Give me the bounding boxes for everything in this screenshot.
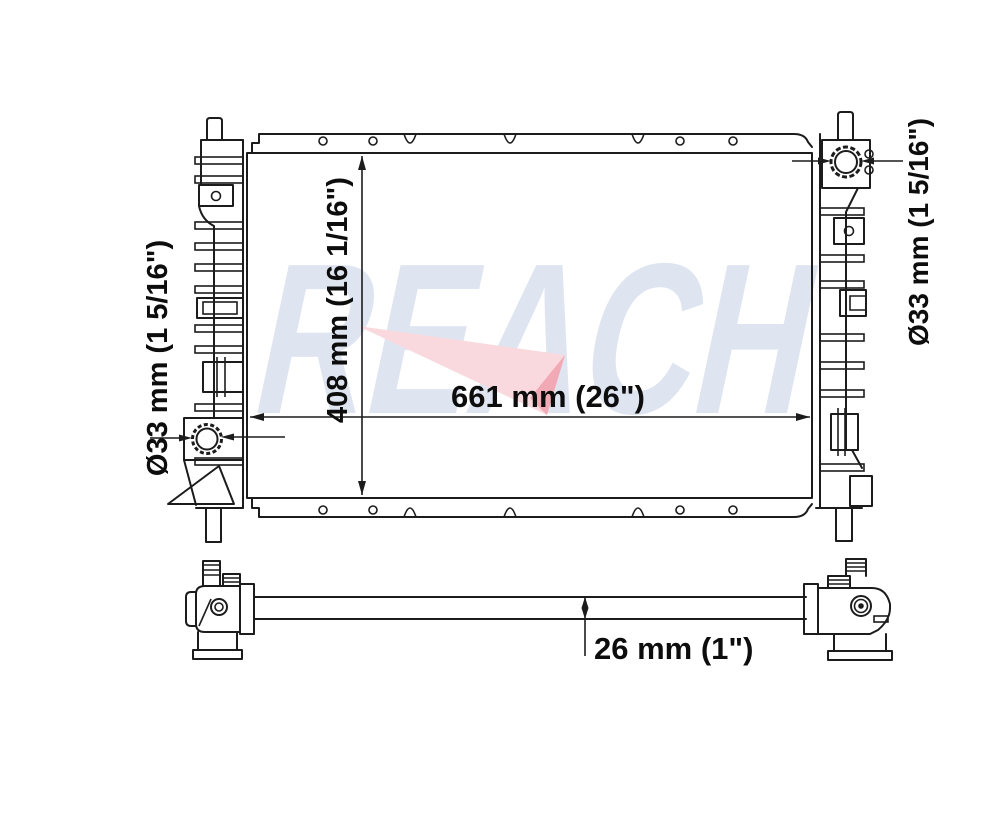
bottom-left-side-nub xyxy=(186,592,196,626)
bottom-right-hose-barb-lower-step xyxy=(828,576,850,588)
dim-core-height-label: 408 mm (16 1/16") xyxy=(322,177,354,423)
dim-core-thickness: 26 mm (1") xyxy=(582,597,754,666)
right-tank-top-pin xyxy=(838,112,853,140)
left-tank-upper-bracket xyxy=(199,185,233,206)
right-tank-upper-bracket xyxy=(834,218,864,244)
right-tank xyxy=(816,112,873,541)
bottom-right-lower-pipe xyxy=(828,634,892,660)
bottom-left-lower-pipe xyxy=(193,632,242,659)
diagram-canvas: REACH xyxy=(0,0,1002,831)
bottom-right-hose-barb-upper-step xyxy=(846,559,866,576)
bottom-view xyxy=(186,559,892,660)
bottom-right-tank xyxy=(804,559,892,660)
left-tank-pin-bracket xyxy=(203,357,243,397)
right-tank-clip-bracket xyxy=(840,290,866,316)
right-tank-pin-bracket xyxy=(831,408,858,456)
bottom-core-bar xyxy=(254,597,806,619)
bottom-left-hose-barb-1 xyxy=(203,561,220,586)
bottom-left-hose-barb-2 xyxy=(223,574,240,586)
filler-neck xyxy=(822,140,873,188)
radiator-diagram-svg: REACH xyxy=(0,0,1002,831)
right-tank-bottom-pin xyxy=(836,508,852,541)
left-tank-drain-triangle xyxy=(168,466,234,504)
dim-left-port-label: Ø33 mm (1 5/16") xyxy=(142,240,174,476)
left-tank-bottom-pin xyxy=(206,508,221,542)
right-tank-outlet-block xyxy=(850,476,872,506)
bottom-left-tank xyxy=(186,561,254,659)
left-outlet-port xyxy=(184,418,243,460)
dim-right-port-label: Ø33 mm (1 5/16") xyxy=(903,118,934,346)
left-tank-mid-bracket xyxy=(197,298,243,318)
left-tank xyxy=(168,118,243,542)
left-tank-top-pin xyxy=(207,118,222,140)
dim-core-width-label: 661 mm (26") xyxy=(451,379,645,414)
dim-core-thickness-label: 26 mm (1") xyxy=(594,631,753,666)
